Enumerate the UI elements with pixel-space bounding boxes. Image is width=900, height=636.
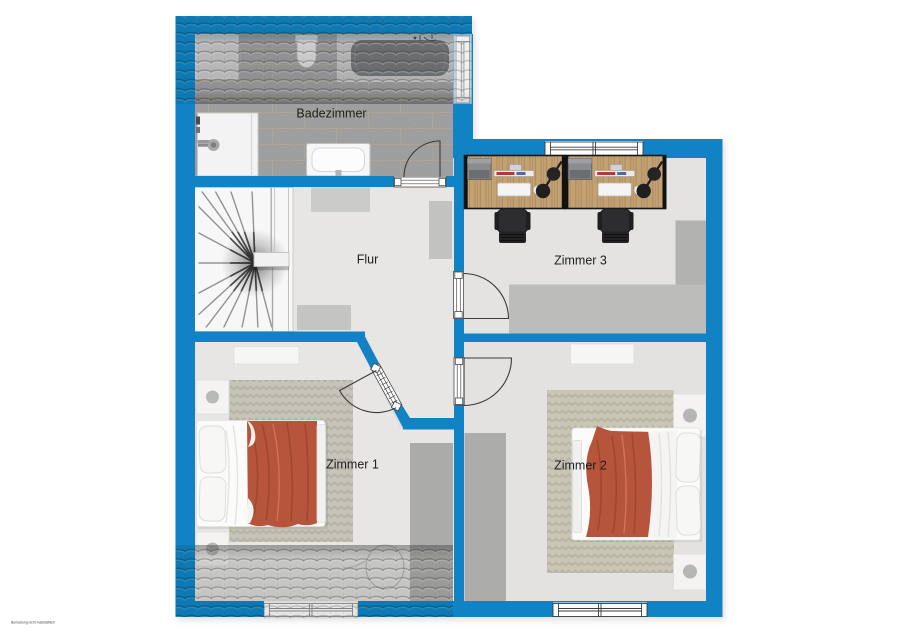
svg-text:Badezimmer: Badezimmer [296,107,366,121]
svg-text:Flur: Flur [357,253,379,267]
svg-text:Bemaßung nicht maßstäblich: Bemaßung nicht maßstäblich [11,621,55,625]
svg-text:Zimmer 3: Zimmer 3 [554,254,607,268]
svg-text:Zimmer 1: Zimmer 1 [326,458,379,472]
svg-text:Zimmer 2: Zimmer 2 [554,459,607,473]
